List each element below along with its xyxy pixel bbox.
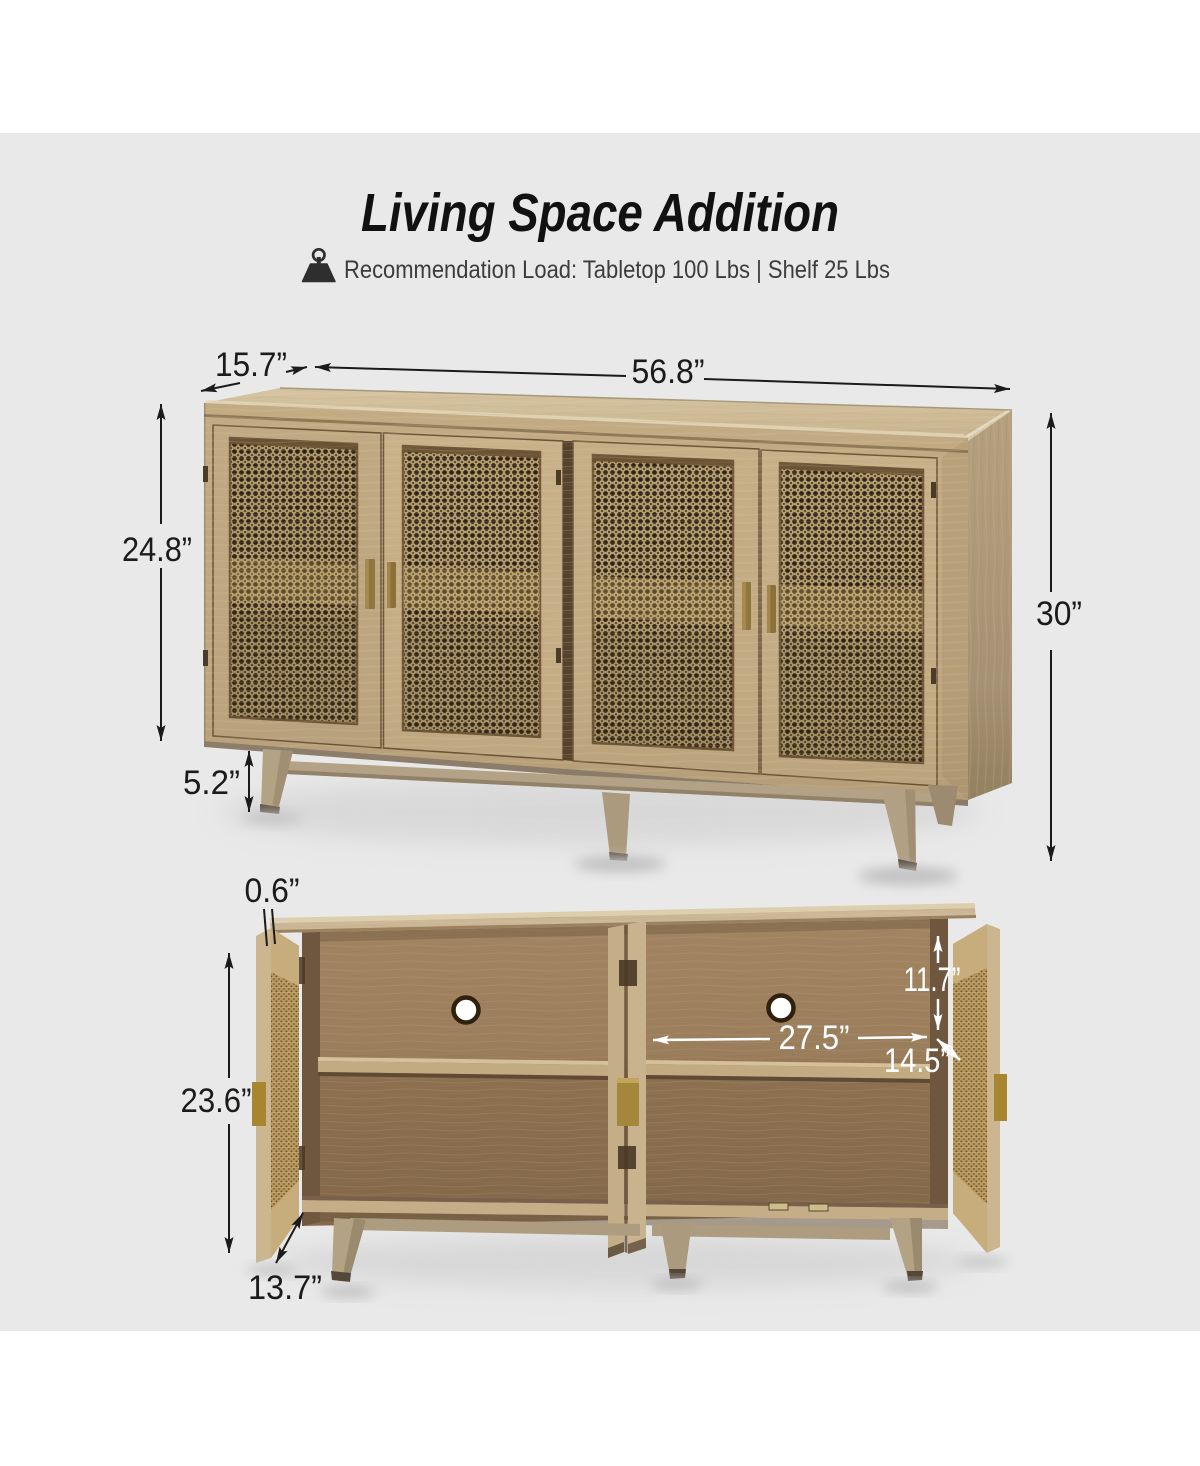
- svg-text:11.7”: 11.7”: [904, 961, 961, 999]
- svg-text:30”: 30”: [1036, 595, 1082, 633]
- svg-text:13.7”: 13.7”: [248, 1269, 322, 1307]
- svg-text:14.5”: 14.5”: [884, 1042, 950, 1080]
- svg-text:15.7”: 15.7”: [215, 346, 287, 384]
- svg-text:Living Space Addition: Living Space Addition: [361, 183, 839, 243]
- svg-text:56.8”: 56.8”: [632, 353, 705, 391]
- svg-text:24.8”: 24.8”: [122, 531, 192, 569]
- svg-text:Recommendation Load: Tabletop: Recommendation Load: Tabletop 100 Lbs | …: [344, 256, 890, 284]
- svg-text:23.6”: 23.6”: [181, 1082, 252, 1120]
- svg-text:0.6”: 0.6”: [245, 872, 300, 910]
- svg-text:27.5”: 27.5”: [779, 1019, 850, 1057]
- svg-text:5.2”: 5.2”: [183, 764, 240, 802]
